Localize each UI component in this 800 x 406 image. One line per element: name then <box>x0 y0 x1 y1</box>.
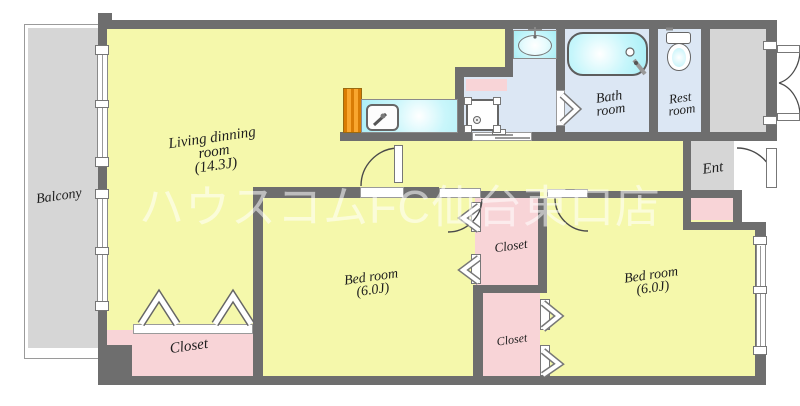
washer-drain <box>474 117 481 124</box>
lower-closet-bifold <box>543 303 559 375</box>
floor-plan: Balcony Living dinning room (14.3J) Bath… <box>0 0 800 406</box>
porch-door-leaf <box>777 113 800 121</box>
porch-door-arc <box>779 83 800 117</box>
porch-door-hinge <box>763 41 777 50</box>
front-door-leaf <box>766 148 777 188</box>
bath-folding-door <box>562 95 577 123</box>
bathtub-handle <box>634 60 645 74</box>
watermark-text: ハウスコムFC仙台東口店 <box>139 171 661 236</box>
basin-faucet <box>528 27 542 39</box>
porch-door-hinge <box>763 116 777 125</box>
bathtub-drain <box>626 48 634 56</box>
kitchen-faucet <box>374 114 386 126</box>
porch-door-arc <box>779 49 800 83</box>
living-closet-bifold <box>141 296 251 324</box>
porch-door-leaf <box>777 45 800 53</box>
